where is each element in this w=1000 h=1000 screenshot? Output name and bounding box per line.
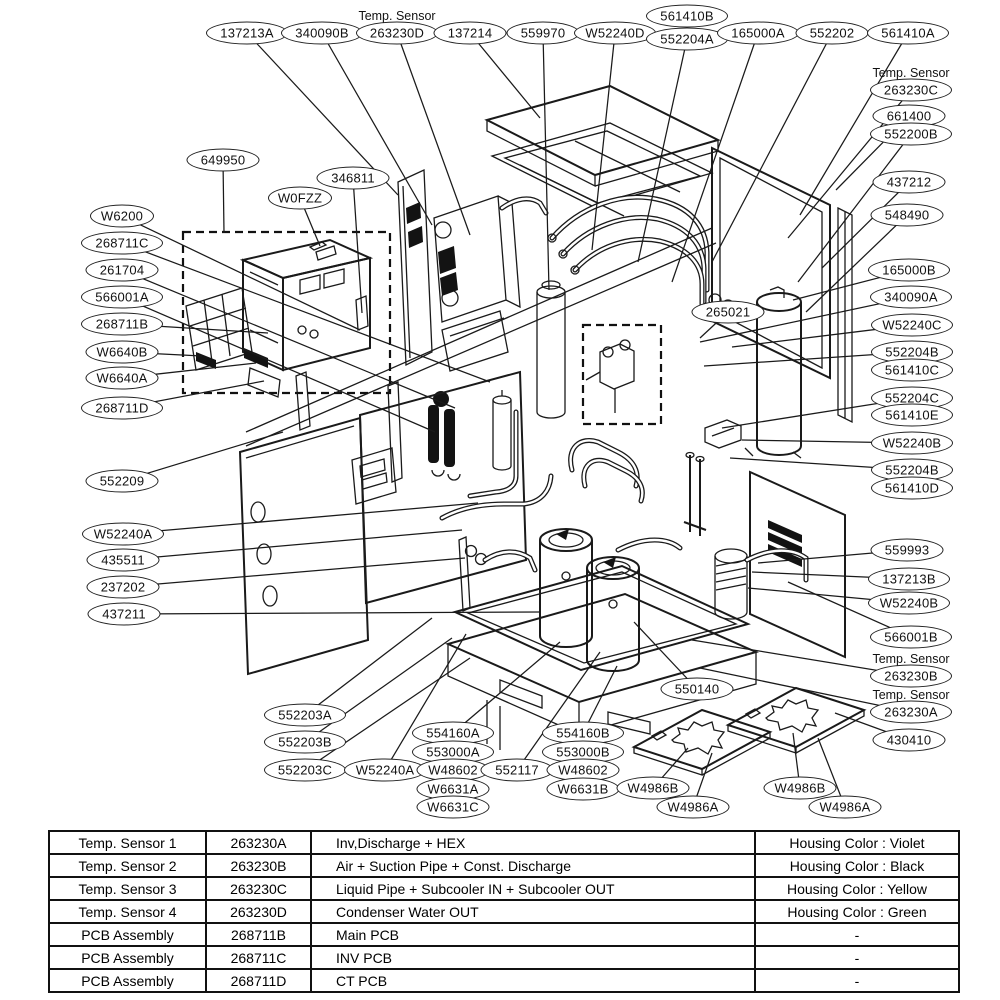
part-label-w52240a: W52240A (344, 759, 426, 782)
eev-valve-dashed-box (583, 325, 661, 424)
table-cell: - (755, 923, 959, 946)
control-box-dashed-box (183, 232, 390, 397)
leader-line (322, 33, 432, 225)
gasket-plates (634, 688, 864, 775)
leader-line (124, 612, 540, 614)
part-label-566001b: 566001B (870, 626, 952, 649)
part-label-263230d: 263230D (356, 22, 438, 45)
table-cell: Temp. Sensor 4 (49, 900, 206, 923)
table-cell: Housing Color : Yellow (755, 877, 959, 900)
leader-line (712, 33, 832, 262)
table-cell: PCB Assembly (49, 969, 206, 992)
table-cell: 268711D (206, 969, 311, 992)
part-label-w6640a: W6640A (86, 367, 159, 390)
part-label-w6631b: W6631B (547, 778, 620, 801)
table-row: PCB Assembly268711BMain PCB- (49, 923, 959, 946)
part-label-w52240d: W52240D (574, 22, 656, 45)
leader-line (397, 33, 470, 235)
part-label-w4986a: W4986A (657, 796, 730, 819)
leader-line (122, 297, 435, 432)
center-piping (442, 390, 741, 536)
part-label-w6200: W6200 (90, 205, 154, 228)
part-label-w4986b: W4986B (764, 777, 837, 800)
part-label-268711c: 268711C (81, 232, 163, 255)
table-cell: - (755, 969, 959, 992)
table-cell: 268711B (206, 923, 311, 946)
table-cell: 263230D (206, 900, 311, 923)
part-label-552203c: 552203C (264, 759, 346, 782)
part-label-263230a: 263230A (870, 701, 952, 724)
table-cell: Temp. Sensor 1 (49, 831, 206, 854)
part-label-552204a: 552204A (646, 28, 728, 51)
part-label-261704: 261704 (86, 259, 159, 282)
left-side-panels (240, 228, 716, 674)
part-label-137213a: 137213A (206, 22, 288, 45)
part-label-268711d: 268711D (81, 397, 163, 420)
table-cell: INV PCB (311, 946, 755, 969)
part-label-649950: 649950 (187, 149, 260, 172)
leader-line (672, 33, 758, 282)
leader-line (123, 530, 462, 560)
part-label-137213b: 137213B (868, 568, 950, 591)
part-label-w0fzz: W0FZZ (268, 187, 332, 210)
part-label-552117: 552117 (481, 759, 554, 782)
part-label-561410d: 561410D (871, 477, 953, 500)
table-row: Temp. Sensor 2263230BAir + Suction Pipe … (49, 854, 959, 877)
table-cell: Liquid Pipe + Subcooler IN + Subcooler O… (311, 877, 755, 900)
part-label-263230b: 263230B (870, 665, 952, 688)
part-label-566001a: 566001A (81, 286, 163, 309)
part-label-561410c: 561410C (871, 359, 953, 382)
table-cell: Condenser Water OUT (311, 900, 755, 923)
part-label-552209: 552209 (86, 470, 159, 493)
part-label-550140: 550140 (661, 678, 734, 701)
table-row: Temp. Sensor 3263230CLiquid Pipe + Subco… (49, 877, 959, 900)
part-label-268711b: 268711B (81, 313, 163, 336)
receiver-cylinder (537, 281, 565, 418)
table-cell: - (755, 946, 959, 969)
right-vented-panel (750, 472, 845, 657)
table-cell: 263230A (206, 831, 311, 854)
part-label-263230c: 263230C (870, 79, 952, 102)
table-cell: Main PCB (311, 923, 755, 946)
part-label-437212: 437212 (873, 171, 946, 194)
table-cell: 263230B (206, 854, 311, 877)
table-cell: CT PCB (311, 969, 755, 992)
suction-pipe-assembly (548, 197, 734, 312)
table-row: PCB Assembly268711CINV PCB- (49, 946, 959, 969)
part-label-137214: 137214 (434, 22, 507, 45)
table-cell: PCB Assembly (49, 923, 206, 946)
part-label-561410a: 561410A (867, 22, 949, 45)
table-cell: 263230C (206, 877, 311, 900)
table-cell: Housing Color : Black (755, 854, 959, 877)
leader-line (592, 33, 615, 250)
part-label-265021: 265021 (692, 301, 765, 324)
part-label-561410b: 561410B (646, 5, 728, 28)
table-cell: Inv,Discharge + HEX (311, 831, 755, 854)
part-label-w6631c: W6631C (417, 796, 490, 819)
part-label-w4986a: W4986A (809, 796, 882, 819)
part-label-552203b: 552203B (264, 731, 346, 754)
part-label-340090b: 340090B (281, 22, 363, 45)
table-row: Temp. Sensor 1263230AInv,Discharge + HEX… (49, 831, 959, 854)
part-label-w6640b: W6640B (86, 341, 159, 364)
table-row: PCB Assembly268711DCT PCB- (49, 969, 959, 992)
expansion-valve-assembly (428, 391, 460, 480)
left-tall-panel (398, 170, 432, 365)
part-label-552200b: 552200B (870, 123, 952, 146)
table-cell: Air + Suction Pipe + Const. Discharge (311, 854, 755, 877)
part-label-548490: 548490 (871, 204, 944, 227)
part-label-340090a: 340090A (870, 286, 952, 309)
part-label-w52240a: W52240A (82, 523, 164, 546)
leader-line (123, 503, 478, 534)
parts-table: Temp. Sensor 1263230AInv,Discharge + HEX… (48, 830, 960, 993)
part-label-552202: 552202 (796, 22, 869, 45)
part-label-346811: 346811 (317, 167, 390, 190)
part-label-430410: 430410 (873, 729, 946, 752)
part-label-559970: 559970 (507, 22, 580, 45)
part-label-w52240b: W52240B (871, 432, 953, 455)
part-label-237202: 237202 (87, 576, 160, 599)
part-label-w52240c: W52240C (871, 314, 953, 337)
plate-heat-exchanger (434, 196, 546, 371)
table-cell: 268711C (206, 946, 311, 969)
leader-line (123, 558, 465, 587)
part-label-165000b: 165000B (868, 259, 950, 282)
table-cell: PCB Assembly (49, 946, 206, 969)
part-label-559993: 559993 (871, 539, 944, 562)
part-label-w52240b: W52240B (868, 592, 950, 615)
part-label-435511: 435511 (87, 549, 160, 572)
parts-table-body: Temp. Sensor 1263230AInv,Discharge + HEX… (49, 831, 959, 992)
right-frame-panels (712, 148, 852, 422)
part-label-165000a: 165000A (717, 22, 799, 45)
part-label-437211: 437211 (88, 603, 161, 626)
table-cell: Housing Color : Green (755, 900, 959, 923)
part-label-552203a: 552203A (264, 704, 346, 727)
table-cell: Temp. Sensor 3 (49, 877, 206, 900)
leader-line (122, 243, 490, 382)
exploded-parts-diagram-page: 137213A340090BTemp. Sensor263230D1372145… (0, 0, 1000, 1000)
table-row: Temp. Sensor 4263230DCondenser Water OUT… (49, 900, 959, 923)
table-cell: Housing Color : Violet (755, 831, 959, 854)
leader-line (470, 33, 540, 118)
table-cell: Temp. Sensor 2 (49, 854, 206, 877)
part-label-561410e: 561410E (871, 404, 953, 427)
leader-line (353, 178, 362, 313)
